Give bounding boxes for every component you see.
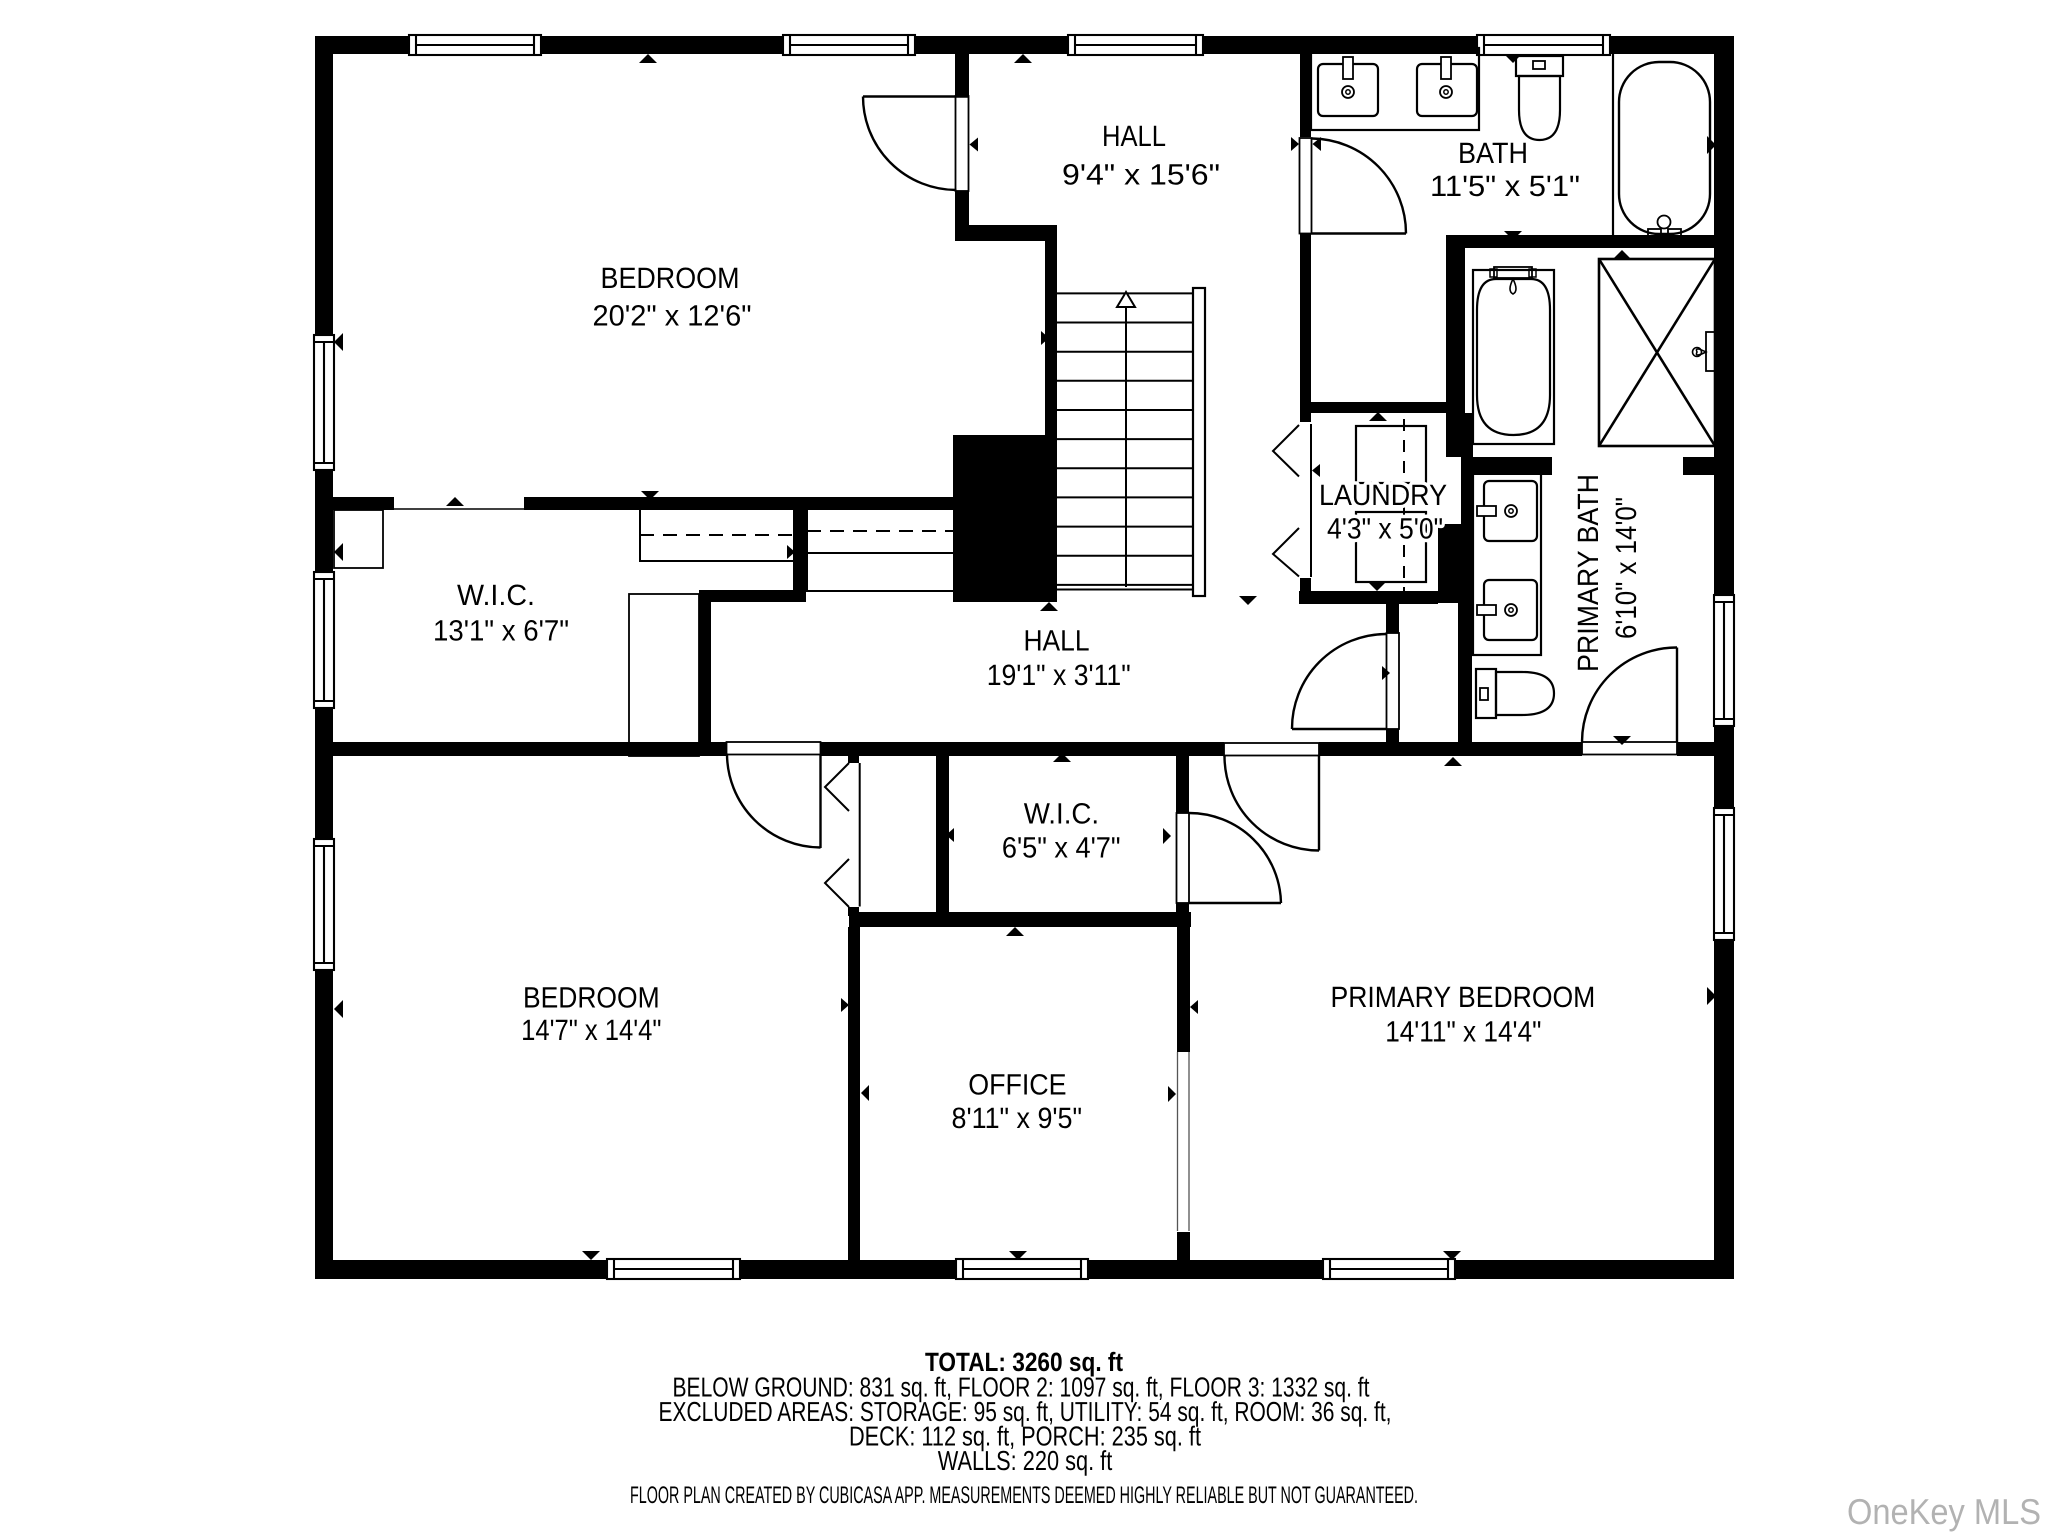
svg-text:OFFICE: OFFICE [968,1068,1066,1101]
svg-text:6'10" x 14'0": 6'10" x 14'0" [1610,497,1643,639]
svg-text:8'11" x 9'5": 8'11" x 9'5" [952,1102,1083,1135]
svg-text:HALL: HALL [1102,120,1166,153]
svg-text:4'3" x 5'0": 4'3" x 5'0" [1327,513,1443,546]
svg-text:W.I.C.: W.I.C. [1024,798,1099,831]
svg-text:LAUNDRY: LAUNDRY [1319,479,1447,512]
svg-text:FLOOR PLAN CREATED BY CUBICASA: FLOOR PLAN CREATED BY CUBICASA APP. MEAS… [630,1482,1418,1509]
svg-text:PRIMARY BATH: PRIMARY BATH [1572,474,1605,672]
svg-text:11'5" x 5'1": 11'5" x 5'1" [1430,170,1580,203]
svg-text:20'2" x 12'6": 20'2" x 12'6" [593,300,752,333]
svg-text:14'11" x 14'4": 14'11" x 14'4" [1385,1016,1541,1049]
svg-text:9'4" x 15'6": 9'4" x 15'6" [1062,159,1220,192]
svg-text:14'7" x 14'4": 14'7" x 14'4" [521,1014,661,1047]
svg-text:BEDROOM: BEDROOM [523,981,660,1014]
svg-text:BATH: BATH [1458,137,1528,170]
svg-text:OneKey MLS: OneKey MLS [1847,1491,2041,1532]
svg-text:HALL: HALL [1024,625,1090,658]
svg-text:BEDROOM: BEDROOM [601,262,740,295]
svg-text:PRIMARY BEDROOM: PRIMARY BEDROOM [1331,981,1596,1014]
svg-text:6'5" x 4'7": 6'5" x 4'7" [1002,832,1121,865]
svg-text:WALLS: 220 sq. ft: WALLS: 220 sq. ft [938,1445,1113,1476]
svg-text:W.I.C.: W.I.C. [457,579,535,612]
svg-text:19'1" x 3'11": 19'1" x 3'11" [987,659,1131,692]
svg-text:13'1" x 6'7": 13'1" x 6'7" [433,615,569,648]
